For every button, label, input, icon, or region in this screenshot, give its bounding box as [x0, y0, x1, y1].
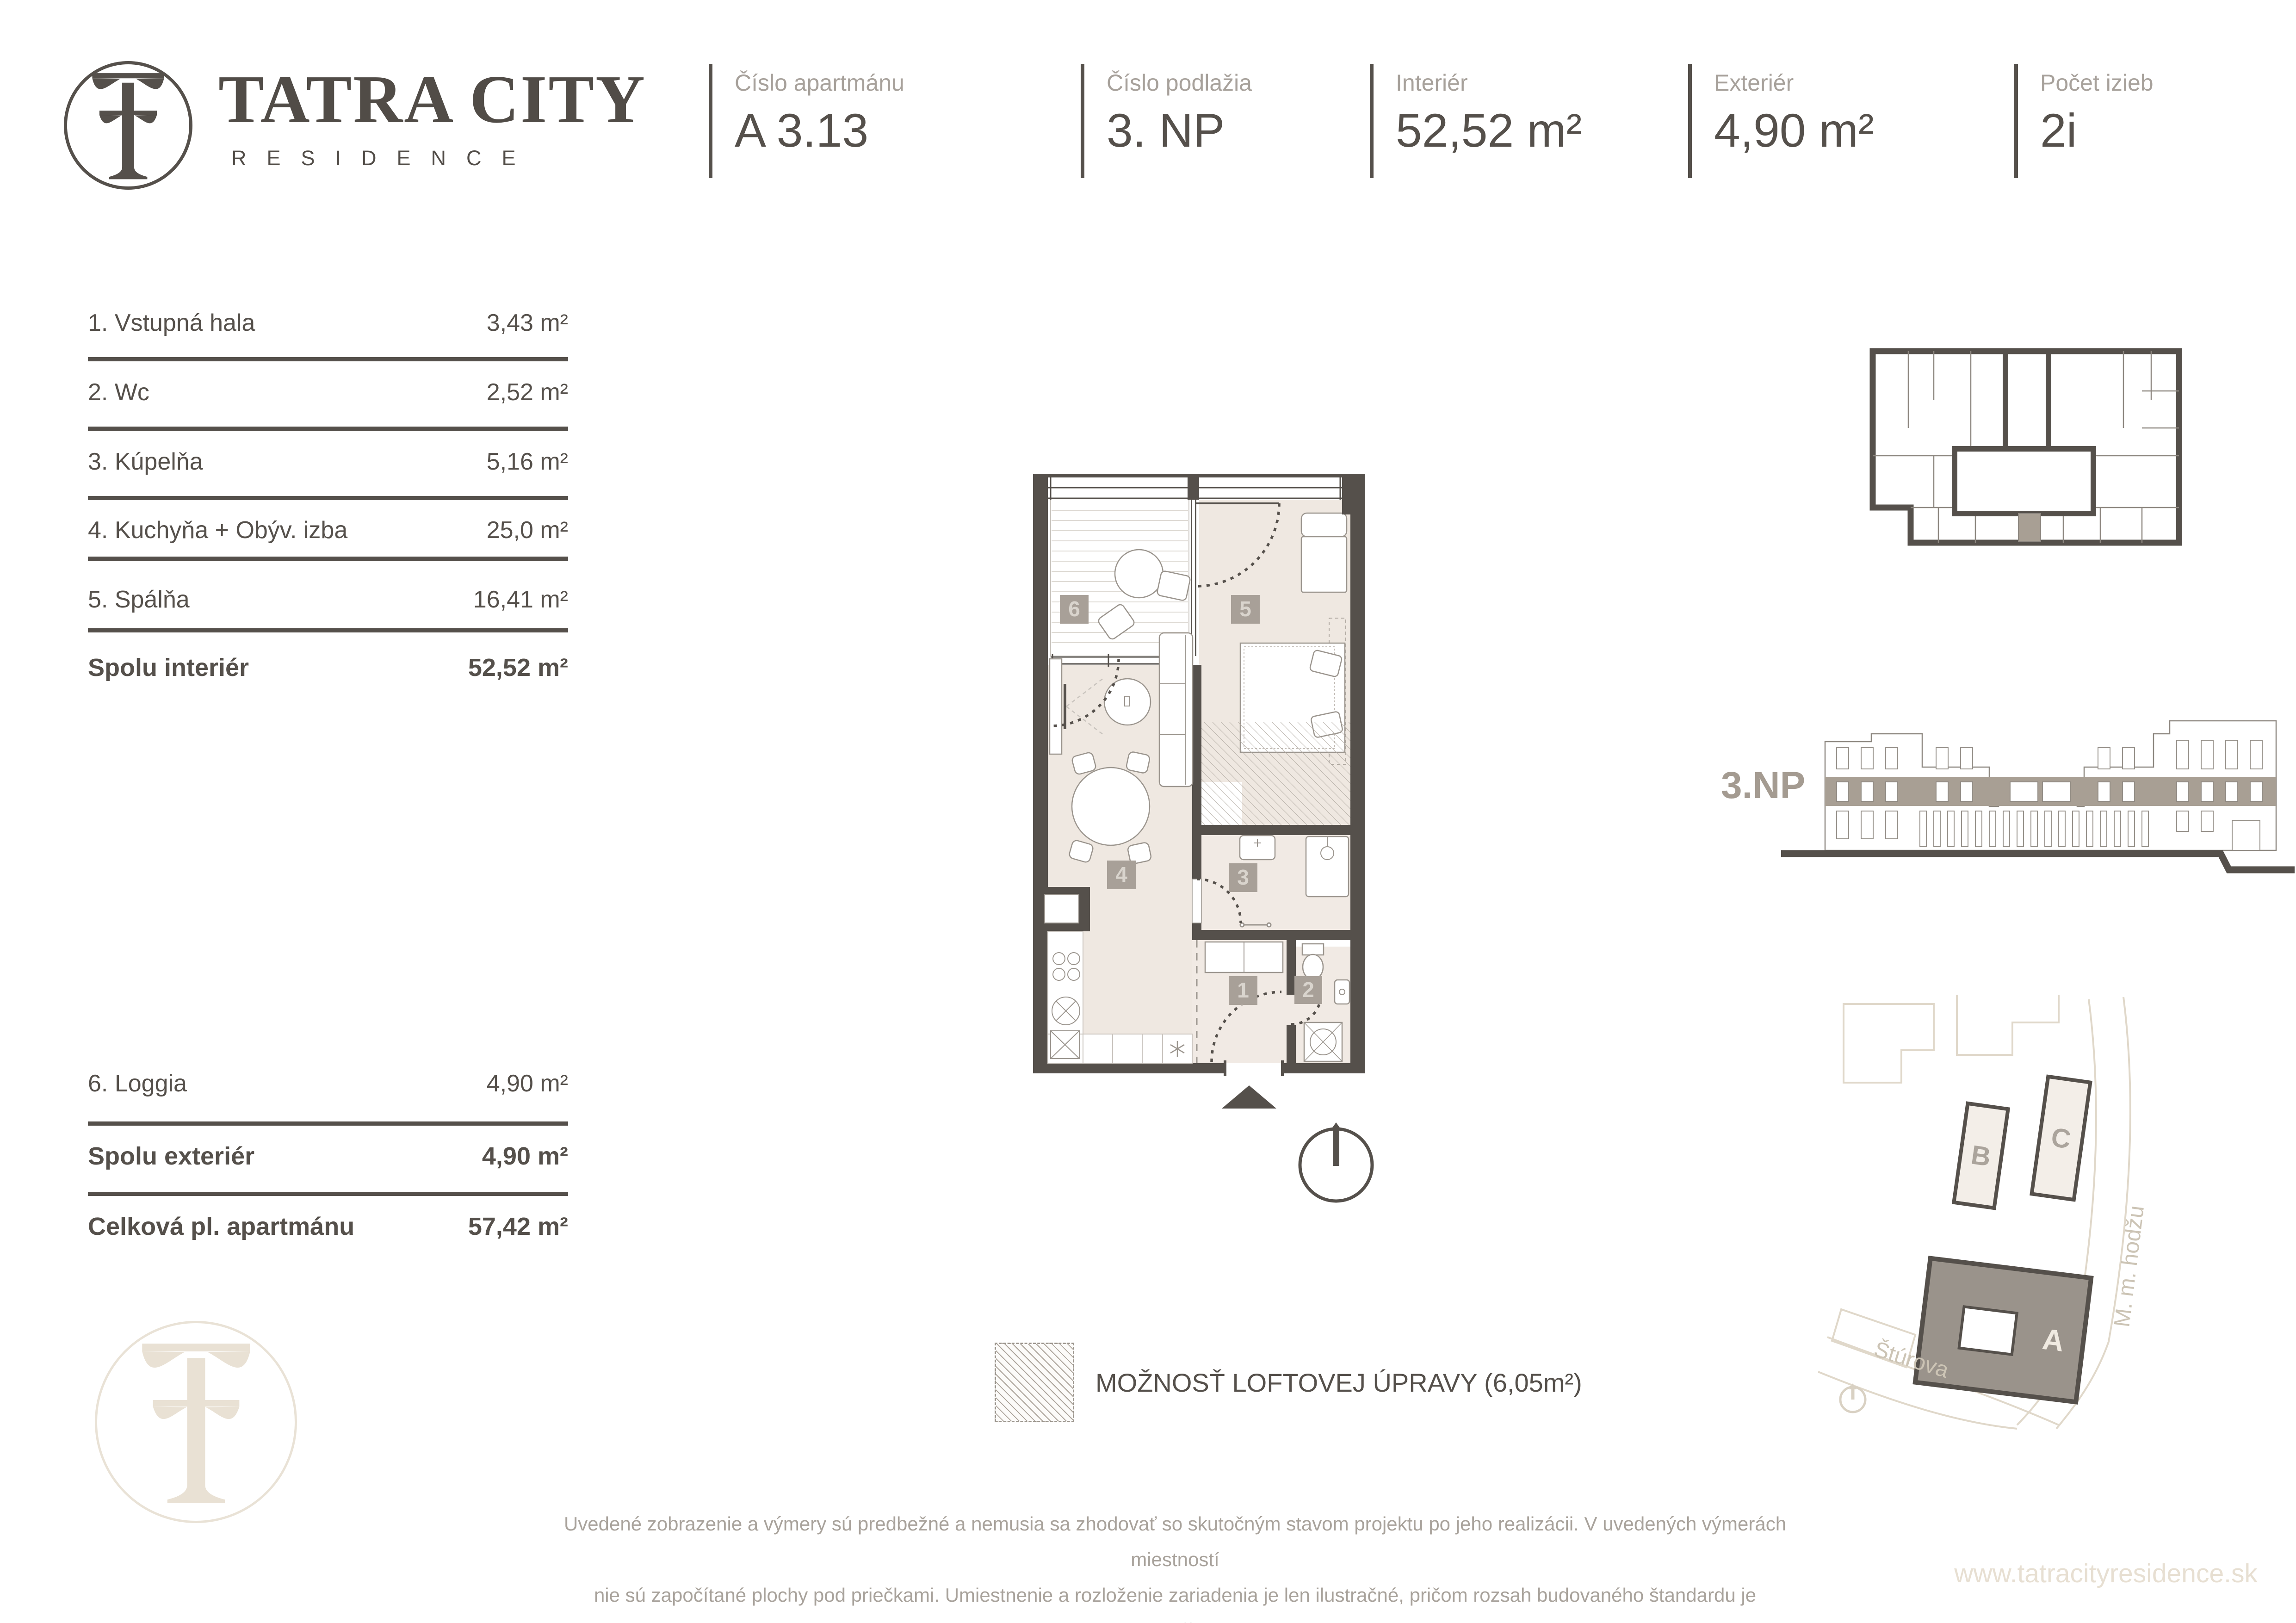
- table-divider: [88, 1121, 568, 1126]
- highlighted-unit: [2018, 514, 2041, 541]
- dishwasher-icon: [1051, 1031, 1079, 1059]
- tf-monogram-icon: [83, 68, 173, 183]
- field-floor-number-value: 3. NP: [1107, 104, 1225, 158]
- table-total-exterior: Spolu exteriér 4,90 m²: [88, 1142, 568, 1171]
- loggia-table: [1115, 550, 1163, 598]
- disclaimer-line-1: Uvedené zobrazenie a výmery sú predbežné…: [546, 1506, 1804, 1577]
- table-grand-total: Celková pl. apartmánu 57,42 m²: [88, 1212, 568, 1241]
- badge-1: 1: [1237, 978, 1249, 1002]
- header-divider: [1081, 64, 1084, 178]
- field-rooms-value: 2i: [2040, 104, 2077, 158]
- north-compass-icon: [1300, 1122, 1372, 1201]
- hall-closet: [1205, 942, 1283, 973]
- header-divider: [2014, 64, 2018, 178]
- toilet-bowl: [1303, 954, 1323, 979]
- table-divider: [88, 628, 568, 632]
- brand-title: TATRA CITY: [218, 60, 646, 139]
- total-name: Spolu exteriér: [88, 1142, 254, 1171]
- header-divider: [1370, 64, 1374, 178]
- street-label-right: M. m. hodžu: [2110, 1204, 2149, 1329]
- total-area: 57,42 m²: [468, 1212, 568, 1241]
- badge-6: 6: [1068, 597, 1080, 621]
- table-divider: [88, 557, 568, 561]
- room-area: 3,43 m²: [487, 309, 568, 337]
- ground-line: [1781, 854, 2295, 870]
- building-c-label: C: [2049, 1122, 2073, 1154]
- disclaimer: Uvedené zobrazenie a výmery sú predbežné…: [546, 1506, 1804, 1623]
- field-rooms-label: Počet izieb: [2040, 69, 2154, 96]
- room-name: 3. Kúpelňa: [88, 448, 203, 476]
- site-plan: B C A M. m. hodžu Štúrova: [1818, 985, 2281, 1430]
- table-divider: [88, 427, 568, 431]
- coffee-table: [1104, 679, 1151, 725]
- header-divider: [709, 64, 712, 178]
- brand-logo: [64, 61, 192, 190]
- table-row: 1. Vstupná hala 3,43 m²: [88, 309, 568, 337]
- key-plan: [1864, 345, 2188, 548]
- badge-4: 4: [1115, 862, 1127, 886]
- table-row: 3. Kúpelňa 5,16 m²: [88, 448, 568, 476]
- bath-door-leaf: [1192, 879, 1201, 923]
- table-total-interior: Spolu interiér 52,52 m²: [88, 653, 568, 682]
- building-b-label: B: [1969, 1140, 1993, 1172]
- shaft: [1045, 894, 1079, 923]
- loggia-chair: [1157, 570, 1191, 601]
- table-divider: [88, 496, 568, 500]
- room-name: 6. Loggia: [88, 1070, 187, 1097]
- field-apartment-number-label: Číslo apartmánu: [735, 69, 904, 96]
- field-floor-number-label: Číslo podlažia: [1107, 69, 1252, 96]
- field-interior-value: 52,52 m²: [1396, 104, 1582, 158]
- table-divider: [88, 357, 568, 361]
- toilet-tank: [1302, 944, 1324, 955]
- sofa: [1159, 633, 1193, 787]
- disclaimer-line-2: nie sú započítané plochy pod priečkami. …: [546, 1577, 1804, 1613]
- field-apartment-number-value: A 3.13: [735, 104, 868, 158]
- room-area: 25,0 m²: [487, 516, 568, 544]
- field-exterior-label: Exteriér: [1714, 69, 1794, 96]
- room-area: 4,90 m²: [487, 1070, 568, 1097]
- apartment-datasheet: TATRA CITY RESIDENCE Číslo apartmánu A 3…: [0, 0, 2296, 1623]
- website-link[interactable]: www.tatracityresidence.sk: [1897, 1558, 2258, 1589]
- room-name: 2. Wc: [88, 378, 149, 406]
- table-row: 4. Kuchyňa + Obýv. izba 25,0 m²: [88, 516, 568, 544]
- table-row: 5. Spálňa 16,41 m²: [88, 586, 568, 613]
- room-area: 16,41 m²: [473, 586, 568, 613]
- entrance-opening: [1226, 1063, 1281, 1073]
- disclaimer-line-3: popísaný v technickej špecifikácii proje…: [546, 1613, 1804, 1623]
- table-divider: [88, 1192, 568, 1196]
- room-area: 5,16 m²: [487, 448, 568, 476]
- loft-hatch-swatch: [995, 1343, 1074, 1422]
- badge-3: 3: [1237, 865, 1249, 889]
- table-row: 2. Wc 2,52 m²: [88, 378, 568, 406]
- total-area: 4,90 m²: [482, 1142, 568, 1171]
- elevation-floor-label: 3.NP: [1721, 764, 1805, 806]
- total-name: Celková pl. apartmánu: [88, 1212, 354, 1241]
- table-row: 6. Loggia 4,90 m²: [88, 1070, 568, 1097]
- room-name: 1. Vstupná hala: [88, 309, 255, 337]
- badge-2: 2: [1302, 978, 1314, 1002]
- building-elevation: 3.NP: [1716, 703, 2295, 879]
- building-a-label: A: [2041, 1322, 2066, 1358]
- field-exterior-value: 4,90 m²: [1714, 104, 1874, 158]
- room-area: 2,52 m²: [487, 378, 568, 406]
- watermark-logo: [95, 1321, 297, 1523]
- building-c: C: [2032, 1077, 2091, 1200]
- site-compass-icon: [1840, 1383, 1865, 1412]
- brand-subtitle: RESIDENCE: [231, 146, 536, 170]
- badge-5: 5: [1239, 597, 1251, 621]
- floor-plan: 6 5 4 3 1 2: [1029, 463, 1376, 1221]
- legend-loft-label: MOŽNOSŤ LOFTOVEJ ÚPRAVY (6,05m²): [1095, 1368, 1582, 1398]
- building-b: B: [1954, 1103, 2008, 1208]
- header-divider: [1688, 64, 1692, 178]
- entrance-arrow-icon: [1222, 1085, 1276, 1109]
- room-name: 5. Spálňa: [88, 586, 190, 613]
- total-name: Spolu interiér: [88, 653, 249, 682]
- room-name: 4. Kuchyňa + Obýv. izba: [88, 516, 347, 544]
- field-interior-label: Interiér: [1396, 69, 1468, 96]
- tf-monogram-watermark-icon: [127, 1335, 266, 1509]
- wardrobe: [1301, 513, 1347, 592]
- wc-sink: [1335, 980, 1349, 1004]
- loft-option-hatch: [1201, 722, 1350, 825]
- total-area: 52,52 m²: [468, 653, 568, 682]
- washing-machine: [1304, 1022, 1342, 1061]
- bath-sink: [1240, 836, 1275, 860]
